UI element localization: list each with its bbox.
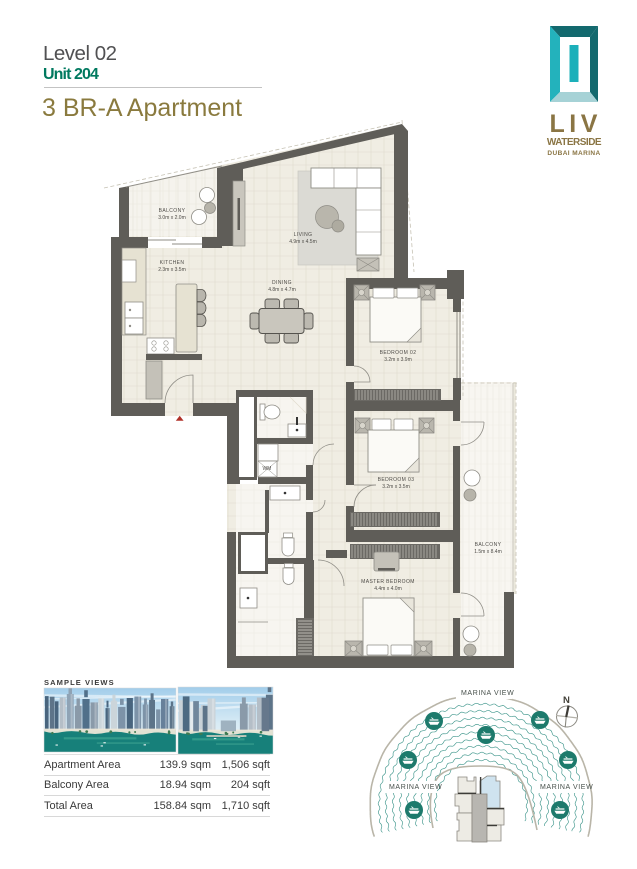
- svg-text:WM: WM: [263, 466, 272, 472]
- svg-text:BEDROOM 03: BEDROOM 03: [378, 477, 415, 483]
- svg-text:3.0m x 2.0m: 3.0m x 2.0m: [158, 215, 186, 221]
- svg-text:4.9m x 4.5m: 4.9m x 4.5m: [289, 239, 317, 245]
- svg-text:3.2m x 3.9m: 3.2m x 3.9m: [384, 357, 412, 363]
- svg-text:BALCONY: BALCONY: [159, 208, 186, 214]
- svg-text:LIVING: LIVING: [294, 232, 313, 238]
- svg-text:DINING: DINING: [272, 280, 292, 286]
- svg-text:KITCHEN: KITCHEN: [160, 260, 185, 266]
- svg-text:1.5m x 8.4m: 1.5m x 8.4m: [474, 549, 502, 555]
- svg-text:BALCONY: BALCONY: [475, 542, 502, 548]
- svg-text:BEDROOM 02: BEDROOM 02: [380, 350, 417, 356]
- svg-text:4.4m x 4.0m: 4.4m x 4.0m: [374, 586, 402, 592]
- svg-text:4.8m x 4.7m: 4.8m x 4.7m: [268, 287, 296, 293]
- svg-text:MASTER BEDROOM: MASTER BEDROOM: [361, 579, 415, 585]
- svg-text:3.2m x 3.5m: 3.2m x 3.5m: [382, 484, 410, 490]
- svg-text:2.3m x 3.5m: 2.3m x 3.5m: [158, 267, 186, 273]
